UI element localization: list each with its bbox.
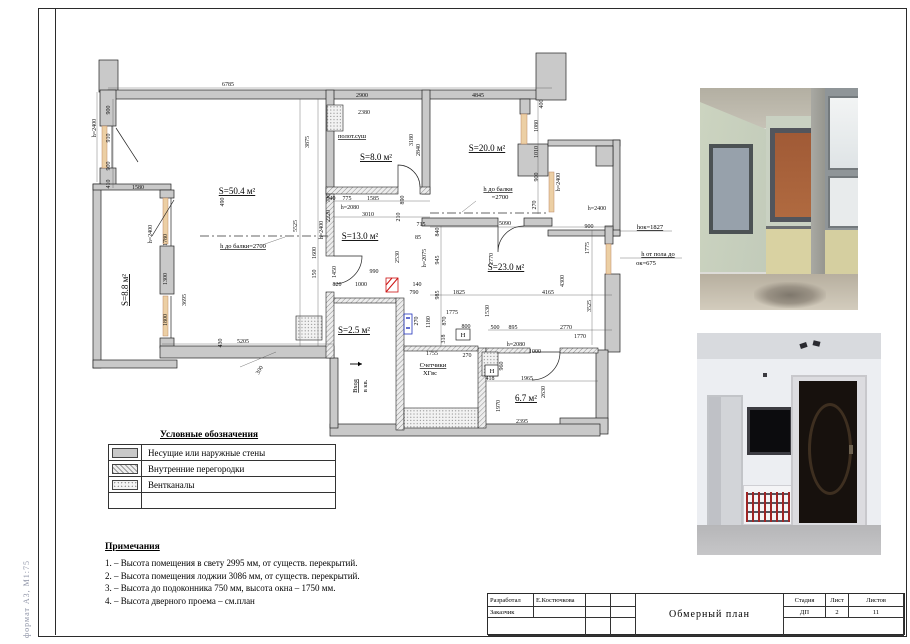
plan-label: 1775	[446, 310, 458, 316]
plan-label: 540	[327, 196, 336, 202]
tb-cell	[488, 618, 586, 636]
plan-label: 140	[413, 282, 422, 288]
legend-title: Условные обозначения	[160, 430, 336, 440]
photo-loggia	[700, 88, 858, 310]
photo-entrance-hall	[697, 333, 881, 555]
plan-label: 990	[370, 269, 379, 275]
plan-label: S=2.5 м²	[338, 325, 370, 335]
plan-label: 4845	[472, 93, 484, 99]
plan-label: 2220	[326, 210, 332, 222]
plan-label: h до балки	[483, 186, 513, 193]
legend-swatch-cell	[109, 461, 142, 476]
legend-row: Внутренние перегородки	[109, 461, 335, 477]
plan-label: h=2400	[148, 225, 154, 243]
plan-label: 900	[106, 162, 112, 171]
stage-label: Стадия	[784, 594, 826, 607]
plan-label: 1600	[312, 247, 318, 259]
plan-label: 5205	[237, 339, 249, 345]
plan-label: 6.7 м²	[515, 393, 537, 403]
drawing-sheet: формат А3, М1:75	[0, 0, 910, 644]
plan-label: 318	[441, 335, 447, 344]
plan-label: 1300	[163, 273, 169, 285]
plan-label: 910	[106, 134, 112, 143]
notes: Примечания 1. – Высота помещения в свету…	[105, 542, 485, 607]
plan-label: 430	[218, 339, 224, 348]
plan-label: 490	[220, 198, 226, 207]
plan-label: 2900	[356, 93, 368, 99]
tb-cell	[586, 594, 611, 607]
legend: Условные обозначения Несущие или наружны…	[108, 430, 336, 509]
stage-value: ДП	[784, 607, 826, 618]
plan-label: 1585	[367, 196, 379, 202]
sheet-label: Лист	[826, 594, 849, 607]
plan-label: 1450	[332, 266, 338, 278]
plan-label: 2840	[416, 144, 422, 156]
photo-hall-doorway-shadow	[709, 397, 721, 525]
water-meter-mark	[404, 314, 412, 334]
plan-label: 1755	[426, 351, 438, 357]
plan-label: 2530	[395, 251, 401, 263]
photo-hall-door-knob	[849, 445, 853, 454]
legend-item-label: Внутренние перегородки	[142, 464, 244, 474]
photo-hall-niche	[747, 407, 793, 455]
plan-label: 1010	[534, 146, 540, 158]
plan-label: h=2400	[556, 173, 562, 191]
legend-swatch-solid	[112, 448, 138, 458]
sheet-value: 2	[826, 607, 849, 618]
plan-label: 3525	[587, 300, 593, 312]
legend-row	[109, 493, 335, 508]
photo-hall-door	[799, 381, 857, 523]
plan-label: 1530	[485, 305, 491, 317]
plan-label: 2380	[358, 110, 370, 116]
sheets-value: 11	[849, 607, 904, 618]
plan-label: 5525	[293, 220, 299, 232]
plan-label: h=2400	[588, 206, 606, 212]
plan-label: 1965	[521, 376, 533, 382]
plan-label: 5090	[499, 221, 511, 227]
plan-label: 1825	[453, 290, 465, 296]
tb-cell	[611, 607, 636, 618]
notes-lines: 1. – Высота помещения в свету 2995 мм, о…	[105, 557, 485, 607]
customer-label: Заказчик	[488, 607, 534, 618]
photo-loggia-left-window	[709, 144, 753, 234]
plan-label: 895	[509, 325, 518, 331]
entrance-arrow-icon	[350, 362, 362, 366]
plan-label: 1800	[163, 314, 169, 326]
photo-loggia-left-wall	[700, 102, 766, 272]
photo-loggia-pane	[828, 96, 858, 170]
plan-label: 3010	[362, 212, 374, 218]
plan-label: Вход	[352, 378, 359, 392]
legend-row: Вентканалы	[109, 477, 335, 493]
photo-loggia-pane	[828, 176, 858, 228]
photo-loggia-parapet	[825, 230, 858, 276]
plan-label: h=2400	[92, 119, 98, 137]
plan-label: 900	[585, 224, 594, 230]
document-title: Обмерный план	[636, 594, 784, 636]
legend-swatch-cell	[109, 477, 142, 492]
plan-label: 4300	[560, 275, 566, 287]
plan-label: 1180	[426, 316, 432, 328]
plan-label: 900	[534, 173, 540, 182]
plan-label: S=20.0 м²	[469, 143, 506, 153]
title-block: Разработал Е.Костючкова Заказчик Обмерны…	[487, 593, 905, 635]
plan-label: 3875	[305, 136, 311, 148]
dimension-lines	[97, 88, 682, 424]
photo-loggia-glazing	[825, 88, 858, 288]
plan-label: H	[490, 368, 495, 375]
plan-label: 410	[106, 180, 112, 189]
plan-label: ХГвс	[423, 370, 437, 377]
tb-cell	[611, 594, 636, 607]
photo-hall-door-oval	[808, 403, 852, 495]
plan-label: 6785	[222, 82, 234, 88]
plan-label: 2630	[541, 386, 547, 398]
plan-label: в кв.	[362, 379, 369, 392]
photo-hall-ceiling	[697, 333, 881, 359]
legend-row: Несущие или наружные стены	[109, 445, 335, 461]
note-line: 4. – Высота дверного проема – см.план	[105, 595, 485, 608]
plan-label: 900	[106, 106, 112, 115]
plan-label: 270	[463, 353, 472, 359]
plan-label: 790	[410, 290, 419, 296]
plan-label: 1775	[585, 242, 591, 254]
note-line: 3. – Высота до подоконника 750 мм, высот…	[105, 582, 485, 595]
legend-swatch-dots	[112, 480, 138, 490]
legend-swatch-cell	[109, 493, 142, 508]
plan-label: 3180	[409, 134, 415, 146]
plan-label: 985	[435, 291, 441, 300]
plan-label: 945	[435, 256, 441, 265]
photo-hall-pipes	[746, 492, 790, 522]
notes-title: Примечания	[105, 542, 485, 552]
plan-label: 2395	[516, 419, 528, 425]
plan-label: 4165	[542, 290, 554, 296]
tb-cell	[586, 618, 611, 636]
note-line: 1. – Высота помещения в свету 2995 мм, о…	[105, 557, 485, 570]
plan-label: 1580	[132, 185, 144, 191]
photo-hall-outlet	[763, 373, 767, 377]
sheets-label: Листов	[849, 594, 904, 607]
plan-label: h до балки=2700	[220, 243, 266, 250]
plan-label: 840	[435, 228, 441, 237]
legend-swatch-cell	[109, 445, 142, 460]
plan-label: 800	[462, 324, 471, 330]
plan-label: S=8.8 м²	[120, 274, 130, 306]
tb-cell	[586, 607, 611, 618]
plan-label: h=2400	[319, 221, 325, 239]
plan-label: ок=675	[636, 260, 656, 267]
plan-label: Счетчики	[420, 362, 447, 369]
plan-label: hок=1827	[637, 224, 664, 231]
plan-label: 3695	[182, 294, 188, 306]
photo-loggia-back-wall	[766, 116, 813, 276]
legend-item-label: Вентканалы	[142, 480, 194, 490]
photo-hall-floor	[697, 525, 881, 555]
photo-hall-manifold	[743, 485, 793, 525]
plan-label: 418	[486, 376, 495, 382]
legend-rows: Несущие или наружные стеныВнутренние пер…	[108, 444, 336, 509]
plan-label: 270	[414, 317, 420, 326]
tb-cell	[784, 618, 904, 636]
plan-label: S=23.0 м²	[488, 262, 525, 272]
plan-label: 1770	[574, 334, 586, 340]
plan-label: S=8.0 м²	[360, 152, 392, 162]
plan-label: H	[461, 332, 466, 339]
plan-label: полот.суш	[338, 133, 366, 140]
tb-cell	[534, 607, 586, 618]
photo-loggia-pillar	[811, 88, 825, 284]
plan-label: 1000	[529, 349, 541, 355]
plan-label: 270	[532, 201, 538, 210]
legend-item-label: Несущие или наружные стены	[142, 448, 265, 458]
photo-hall-door-frame	[791, 375, 867, 531]
legend-swatch-hatch	[112, 464, 138, 474]
developed-by: Е.Костючкова	[534, 594, 586, 607]
plan-label: 1000	[355, 282, 367, 288]
plan-labels: 6785900910900410h=24001580490h=240017801…	[92, 82, 675, 425]
photo-loggia-floor	[700, 274, 858, 310]
plan-label: 715	[417, 222, 426, 228]
plan-label: 400	[539, 100, 545, 109]
plan-label: 210	[396, 213, 402, 222]
plan-label: 870	[442, 317, 448, 326]
photo-hall-doorway	[707, 395, 743, 527]
tb-cell	[611, 618, 636, 636]
plan-label: 890	[400, 196, 406, 205]
plan-label: 500	[491, 325, 500, 331]
plan-label: 150	[312, 270, 318, 279]
plan-label: =2700	[492, 194, 509, 201]
entry-door-mark	[386, 278, 398, 292]
plan-label: h=2075	[422, 249, 428, 267]
plan-label: 775	[343, 196, 352, 202]
plan-label: h=2080	[507, 342, 525, 348]
plan-label: 2770	[560, 325, 572, 331]
plan-label: 85	[415, 235, 421, 241]
plan-label: 300	[255, 365, 265, 376]
plan-label: 1080	[534, 120, 540, 132]
plan-label: S=50.4 м²	[219, 186, 256, 196]
plan-label: 960	[499, 362, 505, 371]
note-line: 2. – Высота помещения лоджии 3086 мм, от…	[105, 570, 485, 583]
plan-label: h=2080	[341, 205, 359, 211]
plan-label: S=13.0 м²	[342, 231, 379, 241]
plan-label: 1970	[496, 400, 502, 412]
plan-label: h от пола до	[641, 251, 674, 258]
plan-label: 1780	[163, 234, 169, 246]
photo-loggia-back-panel	[766, 226, 813, 281]
photo-loggia-floor-stain	[754, 282, 827, 308]
developed-label: Разработал	[488, 594, 534, 607]
plan-label: 820	[333, 282, 342, 288]
